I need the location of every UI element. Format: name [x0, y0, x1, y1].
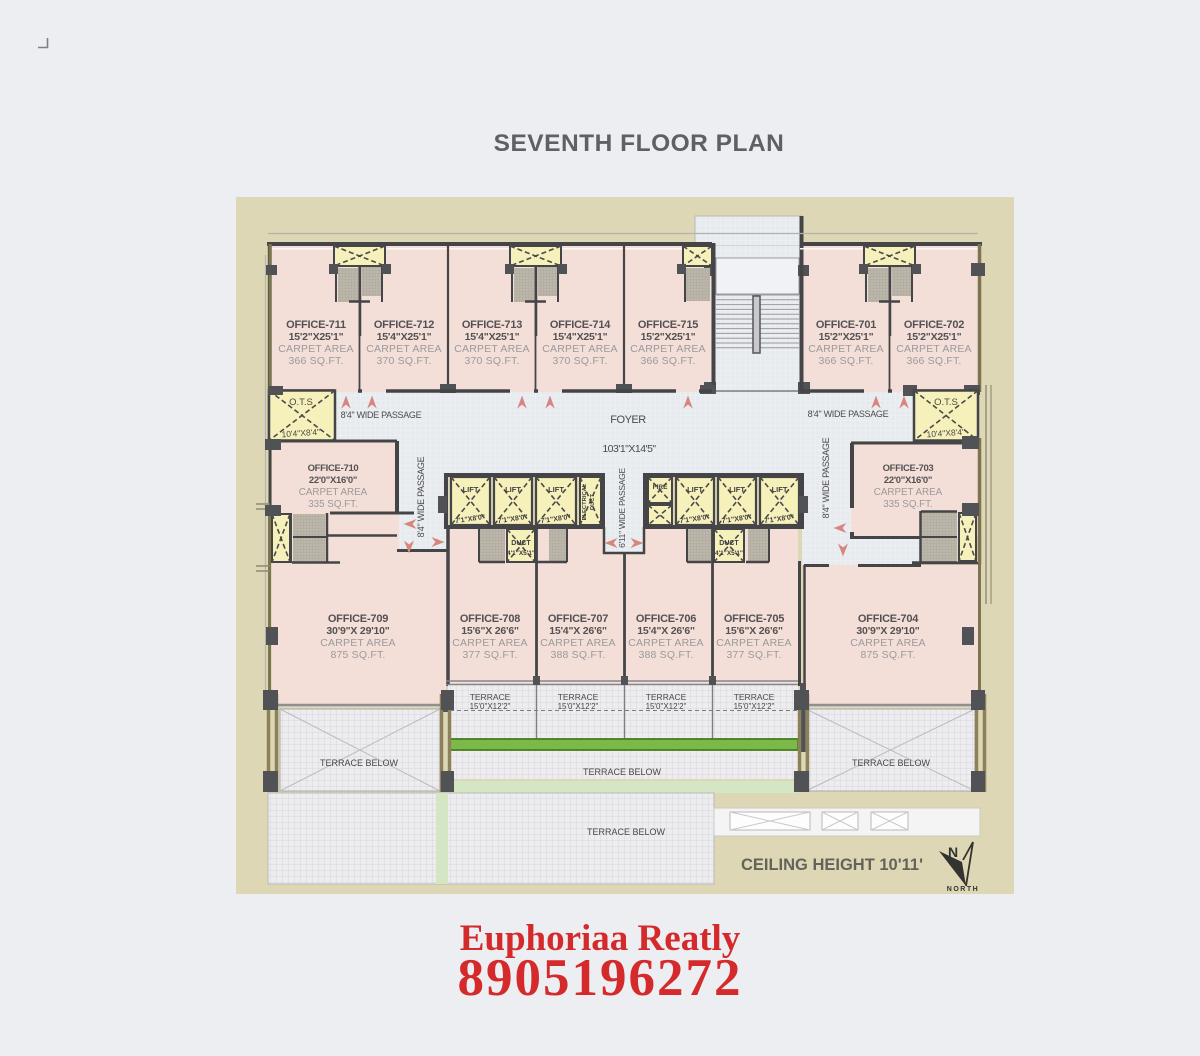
- svg-text:OFFICE-706: OFFICE-706: [636, 613, 696, 625]
- svg-text:CEILING HEIGHT 10'11': CEILING HEIGHT 10'11': [741, 856, 923, 874]
- svg-text:8'4" WIDE PASSAGE: 8'4" WIDE PASSAGE: [416, 456, 426, 537]
- svg-text:TERRACE BELOW: TERRACE BELOW: [852, 758, 931, 768]
- svg-text:OFFICE-704: OFFICE-704: [858, 613, 919, 625]
- svg-text:366 SQ.FT.: 366 SQ.FT.: [818, 355, 873, 367]
- svg-text:377 SQ.FT.: 377 SQ.FT.: [462, 649, 517, 661]
- svg-text:370 SQ.FT.: 370 SQ.FT.: [376, 355, 431, 367]
- svg-text:LIFT: LIFT: [772, 485, 788, 494]
- svg-text:OFFICE-710: OFFICE-710: [308, 463, 359, 474]
- svg-text:OFFICE-712: OFFICE-712: [374, 319, 434, 331]
- svg-text:OFFICE-714: OFFICE-714: [550, 319, 611, 331]
- svg-text:388 SQ.FT.: 388 SQ.FT.: [638, 649, 693, 661]
- svg-text:875 SQ.FT.: 875 SQ.FT.: [330, 649, 385, 661]
- svg-text:OFFICE-713: OFFICE-713: [462, 319, 522, 331]
- svg-text:LIFT: LIFT: [548, 485, 564, 494]
- svg-text:CARPET AREA: CARPET AREA: [540, 637, 616, 649]
- svg-text:875 SQ.FT.: 875 SQ.FT.: [860, 649, 915, 661]
- svg-text:CARPET AREA: CARPET AREA: [716, 637, 792, 649]
- svg-text:OFFICE-708: OFFICE-708: [460, 613, 520, 625]
- svg-text:ELECTRICAL: ELECTRICAL: [582, 483, 588, 520]
- svg-text:6'11" WIDE PASSAGE: 6'11" WIDE PASSAGE: [617, 468, 627, 548]
- svg-text:CARPET AREA: CARPET AREA: [366, 343, 442, 355]
- svg-text:15'2"X25'1": 15'2"X25'1": [641, 331, 696, 343]
- svg-text:FIRE: FIRE: [653, 484, 668, 491]
- svg-text:OFFICE-711: OFFICE-711: [286, 319, 346, 331]
- svg-text:30'9"X 29'10": 30'9"X 29'10": [326, 625, 389, 637]
- svg-text:15'4"X25'1": 15'4"X25'1": [553, 331, 608, 343]
- svg-text:DUCT: DUCT: [511, 540, 531, 547]
- svg-text:15'6"X 26'6": 15'6"X 26'6": [725, 625, 783, 637]
- svg-text:CARPET AREA: CARPET AREA: [452, 637, 528, 649]
- svg-text:366 SQ.FT.: 366 SQ.FT.: [640, 355, 695, 367]
- svg-text:CARPET AREA: CARPET AREA: [874, 487, 943, 498]
- svg-text:OFFICE-703: OFFICE-703: [883, 463, 934, 474]
- svg-text:15'4"X 26'6": 15'4"X 26'6": [549, 625, 607, 637]
- svg-text:LIFT: LIFT: [463, 485, 479, 494]
- svg-text:NORTH: NORTH: [947, 886, 979, 893]
- svg-text:CARPET AREA: CARPET AREA: [808, 343, 884, 355]
- svg-text:N: N: [948, 844, 958, 860]
- svg-text:OFFICE-702: OFFICE-702: [904, 319, 964, 331]
- svg-text:CARPET AREA: CARPET AREA: [278, 343, 354, 355]
- svg-text:TERRACE: TERRACE: [558, 692, 599, 702]
- svg-text:366 SQ.FT.: 366 SQ.FT.: [288, 355, 343, 367]
- svg-text:CARPET AREA: CARPET AREA: [630, 343, 706, 355]
- svg-text:TERRACE: TERRACE: [470, 692, 511, 702]
- svg-text:TERRACE: TERRACE: [646, 692, 687, 702]
- svg-text:O.T.S: O.T.S: [934, 397, 958, 408]
- svg-text:OFFICE-707: OFFICE-707: [548, 613, 608, 625]
- svg-text:DUCT: DUCT: [719, 540, 739, 547]
- svg-text:335 SQ.FT.: 335 SQ.FT.: [883, 499, 933, 510]
- svg-text:LIFT: LIFT: [687, 485, 703, 494]
- svg-text:4'1"X5'1": 4'1"X5'1": [507, 550, 535, 557]
- svg-text:370 SQ.FT.: 370 SQ.FT.: [552, 355, 607, 367]
- svg-text:SEVENTH FLOOR PLAN: SEVENTH FLOOR PLAN: [494, 130, 785, 157]
- svg-text:TERRACE: TERRACE: [734, 692, 775, 702]
- svg-text:15'0"X12'2": 15'0"X12'2": [646, 702, 687, 711]
- svg-text:8'4" WIDE PASSAGE: 8'4" WIDE PASSAGE: [808, 409, 889, 419]
- svg-text:TERRACE BELOW: TERRACE BELOW: [320, 758, 399, 768]
- svg-text:377 SQ.FT.: 377 SQ.FT.: [726, 649, 781, 661]
- svg-text:366 SQ.FT.: 366 SQ.FT.: [906, 355, 961, 367]
- svg-text:15'4"X25'1": 15'4"X25'1": [377, 331, 432, 343]
- svg-text:CARPET AREA: CARPET AREA: [542, 343, 618, 355]
- svg-text:15'0"X12'2": 15'0"X12'2": [470, 702, 511, 711]
- svg-text:DUCT: DUCT: [590, 493, 596, 510]
- svg-text:OFFICE-705: OFFICE-705: [724, 613, 784, 625]
- svg-text:335 SQ.FT.: 335 SQ.FT.: [308, 499, 358, 510]
- svg-text:15'6"X 26'6": 15'6"X 26'6": [461, 625, 519, 637]
- svg-text:15'2"X25'1": 15'2"X25'1": [289, 331, 344, 343]
- svg-text:370 SQ.FT.: 370 SQ.FT.: [464, 355, 519, 367]
- svg-text:LIFT: LIFT: [505, 485, 521, 494]
- svg-text:15'4"X25'1": 15'4"X25'1": [465, 331, 520, 343]
- svg-text:15'2"X25'1": 15'2"X25'1": [819, 331, 874, 343]
- svg-text:CARPET AREA: CARPET AREA: [454, 343, 530, 355]
- svg-text:LIFT: LIFT: [729, 485, 745, 494]
- svg-text:CARPET AREA: CARPET AREA: [896, 343, 972, 355]
- svg-text:O.T.S: O.T.S: [289, 397, 313, 408]
- svg-text:388 SQ.FT.: 388 SQ.FT.: [550, 649, 605, 661]
- svg-text:CARPET AREA: CARPET AREA: [320, 637, 396, 649]
- svg-text:15'0"X12'2": 15'0"X12'2": [734, 702, 775, 711]
- svg-text:15'4"X 26'6": 15'4"X 26'6": [637, 625, 695, 637]
- svg-text:4'1"X5'1": 4'1"X5'1": [715, 550, 743, 557]
- svg-text:CARPET AREA: CARPET AREA: [299, 487, 368, 498]
- svg-text:TERRACE BELOW: TERRACE BELOW: [587, 827, 666, 837]
- svg-text:8'4" WIDE PASSAGE: 8'4" WIDE PASSAGE: [821, 437, 831, 518]
- svg-text:TERRACE BELOW: TERRACE BELOW: [583, 767, 662, 777]
- svg-text:103'1"X14'5": 103'1"X14'5": [602, 443, 656, 455]
- svg-text:OFFICE-715: OFFICE-715: [638, 319, 698, 331]
- svg-text:CARPET AREA: CARPET AREA: [628, 637, 704, 649]
- svg-text:OFFICE-709: OFFICE-709: [328, 613, 388, 625]
- svg-text:15'2"X25'1": 15'2"X25'1": [907, 331, 962, 343]
- svg-text:8905196272: 8905196272: [458, 949, 743, 1007]
- svg-text:22'0"X16'0": 22'0"X16'0": [309, 475, 357, 486]
- svg-text:15'0"X12'2": 15'0"X12'2": [558, 702, 599, 711]
- svg-text:CARPET AREA: CARPET AREA: [850, 637, 926, 649]
- svg-text:OFFICE-701: OFFICE-701: [816, 319, 876, 331]
- svg-text:FOYER: FOYER: [610, 414, 646, 426]
- svg-text:8'4" WIDE PASSAGE: 8'4" WIDE PASSAGE: [341, 410, 422, 420]
- svg-text:30'9"X 29'10": 30'9"X 29'10": [856, 625, 919, 637]
- svg-text:22'0"X16'0": 22'0"X16'0": [884, 475, 932, 486]
